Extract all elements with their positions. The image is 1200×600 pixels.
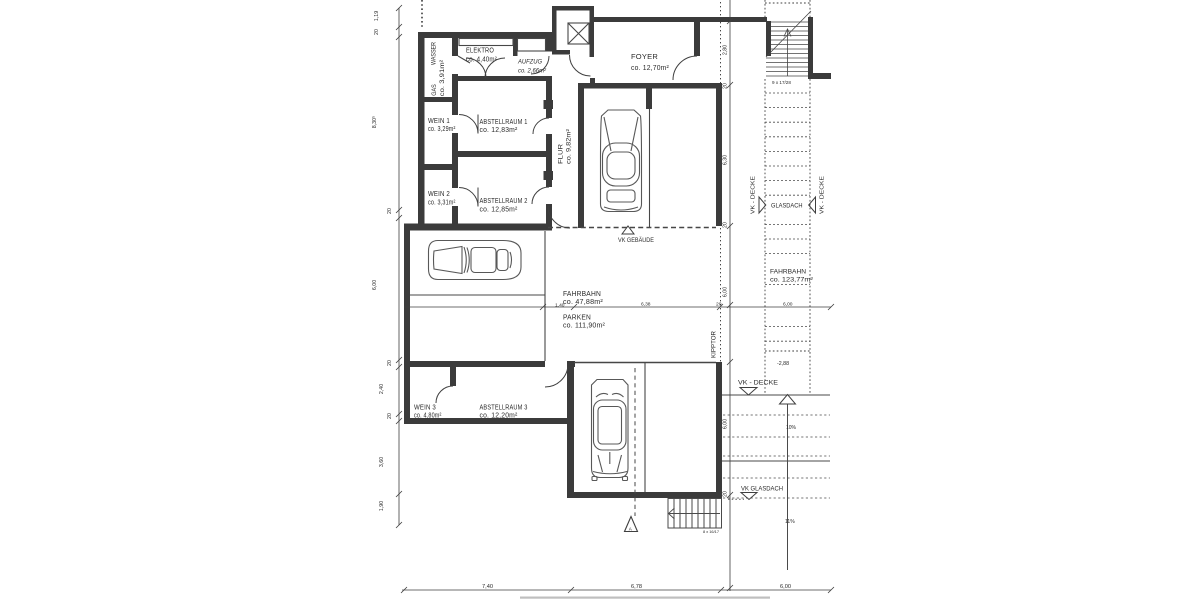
svg-text:WEIN 1: WEIN 1 [428,118,450,125]
svg-text:GLASDACH: GLASDACH [771,203,803,210]
svg-text:co. 4,80m²: co. 4,80m² [414,412,442,419]
svg-text:co. 47,88m²: co. 47,88m² [563,299,603,306]
svg-text:VK GEBÄUDE: VK GEBÄUDE [618,237,654,244]
svg-text:6,00: 6,00 [372,280,378,290]
svg-text:co. 12,83m²: co. 12,83m² [480,127,518,134]
svg-text:20: 20 [716,302,722,308]
svg-text:co. 12,70m²: co. 12,70m² [631,65,669,72]
svg-text:KIPPTOR: KIPPTOR [711,330,718,358]
svg-text:-2,88: -2,88 [777,361,789,367]
svg-text:co. 3,91m²: co. 3,91m² [439,59,446,96]
svg-text:co. 9,82m²: co. 9,82m² [566,128,573,164]
svg-text:2,40: 2,40 [379,384,385,394]
svg-text:FOYER: FOYER [631,54,658,61]
svg-text:6,30: 6,30 [723,155,729,165]
svg-text:co. 2,66m²: co. 2,66m² [518,68,547,75]
svg-text:1,40: 1,40 [555,303,565,309]
svg-text:9 x 17/28: 9 x 17/28 [772,80,791,85]
svg-text:VK GLASDACH: VK GLASDACH [741,486,783,493]
svg-text:ABSTELLRAUM 2: ABSTELLRAUM 2 [480,198,528,205]
svg-text:co. 123,77m²: co. 123,77m² [770,277,813,284]
svg-text:1,19: 1,19 [374,11,380,21]
svg-text:20: 20 [723,491,729,497]
svg-text:8 x 16/17: 8 x 16/17 [703,529,719,534]
svg-text:6,00: 6,00 [723,287,729,297]
svg-text:20: 20 [387,413,393,419]
svg-text:6,38: 6,38 [641,302,651,308]
svg-text:co. 3,31m²: co. 3,31m² [428,200,456,207]
svg-text:ABSTELLRAUM 1: ABSTELLRAUM 1 [480,119,528,126]
svg-text:3,60: 3,60 [379,457,385,467]
svg-text:WEIN 2: WEIN 2 [428,191,450,198]
svg-text:20: 20 [723,222,729,228]
svg-text:WASSER: WASSER [431,42,438,65]
svg-text:VK - DECKE: VK - DECKE [751,176,757,214]
svg-text:6,00: 6,00 [723,419,729,429]
svg-text:FAHRBAHN: FAHRBAHN [563,291,601,298]
svg-text:co. 111,90m²: co. 111,90m² [563,323,605,330]
svg-text:VK - DECKE: VK - DECKE [738,380,778,387]
svg-text:10%: 10% [786,425,797,431]
svg-text:1,90: 1,90 [379,501,385,511]
svg-text:6,00: 6,00 [780,584,791,590]
svg-text:6,00: 6,00 [783,302,793,308]
svg-text:co. 12,20m²: co. 12,20m² [480,412,518,419]
svg-text:PARKEN: PARKEN [563,315,591,322]
svg-text:GAS: GAS [431,84,438,96]
svg-text:11%: 11% [785,519,795,525]
svg-text:20: 20 [723,83,729,89]
svg-text:20: 20 [387,360,393,366]
svg-text:6,78: 6,78 [631,584,642,590]
svg-text:co. 12,85m²: co. 12,85m² [480,207,518,214]
svg-text:20: 20 [374,29,380,35]
svg-text:20: 20 [387,208,393,214]
svg-text:co. 3,29m²: co. 3,29m² [428,126,456,133]
svg-text:8,30⁵: 8,30⁵ [372,116,378,129]
svg-text:ELEKTRO: ELEKTRO [466,48,494,55]
svg-text:FAHRBAHN: FAHRBAHN [770,269,806,276]
svg-text:ABSTELLRAUM 3: ABSTELLRAUM 3 [480,405,528,412]
svg-text:co. 4,40m²: co. 4,40m² [466,57,497,64]
svg-text:AUFZUG: AUFZUG [517,59,542,66]
svg-text:VK - DECKE: VK - DECKE [820,176,826,214]
svg-text:WEIN 3: WEIN 3 [414,405,436,412]
svg-text:FLUR: FLUR [558,144,565,164]
svg-text:7,40: 7,40 [482,584,493,590]
svg-text:2,80: 2,80 [723,45,729,55]
